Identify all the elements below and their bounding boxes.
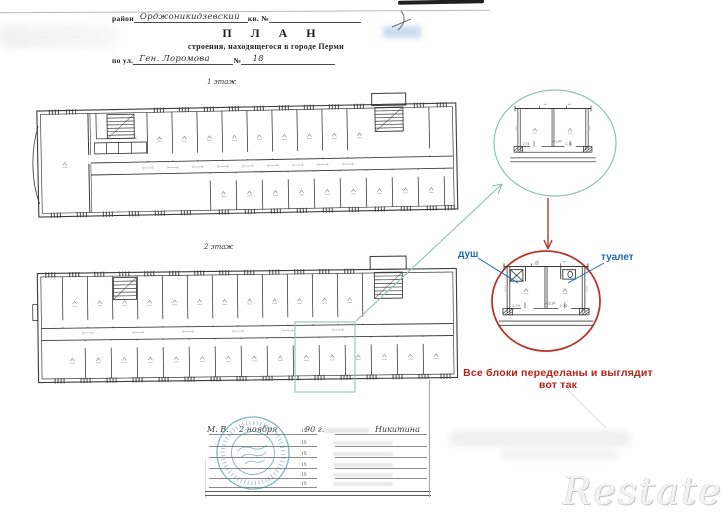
faded-entry: [323, 428, 369, 433]
faded-entry: [333, 473, 393, 477]
round-stamp: [208, 408, 298, 498]
scanned-plan-sheet: район Орджоникидзевский кв. № П Л А Н ст…: [0, 0, 725, 513]
svg-text:2,74: 2,74: [560, 304, 567, 308]
year-printed: 19: [301, 472, 307, 478]
table-rule: [335, 446, 427, 447]
svg-text:2,74: 2,74: [523, 142, 530, 146]
table-left-rule: [205, 460, 206, 498]
year-printed: 19: [301, 440, 307, 446]
svg-text:Н-2,97: Н-2,97: [545, 301, 556, 305]
svg-text:2,74: 2,74: [565, 142, 572, 146]
svg-text:Н-2,97: Н-2,97: [552, 140, 562, 144]
year-printed: 19: [301, 481, 307, 487]
table-rule: [335, 478, 427, 479]
table-rule: [335, 468, 427, 469]
faded-entry: [333, 452, 393, 456]
year-printed: 19: [301, 428, 307, 434]
shower-label: душ: [458, 249, 478, 260]
row1-year: 90 г.: [305, 425, 324, 434]
toilet-label: туалет: [601, 252, 634, 263]
table-rule: [335, 457, 427, 458]
row1-signature: Никитина: [375, 425, 420, 434]
faded-entry: [333, 463, 393, 467]
faded-entry: [333, 441, 393, 445]
watermark-restate: Restate: [563, 469, 723, 513]
faded-entry: [333, 482, 393, 486]
svg-text:92: 92: [534, 262, 539, 266]
svg-text:2,74: 2,74: [512, 304, 519, 308]
table-rule: [335, 434, 427, 435]
year-printed: 19: [301, 462, 307, 468]
year-printed: 19: [301, 451, 307, 457]
renovation-note: Все блоки переделаны и выглядит вот так: [462, 367, 654, 391]
